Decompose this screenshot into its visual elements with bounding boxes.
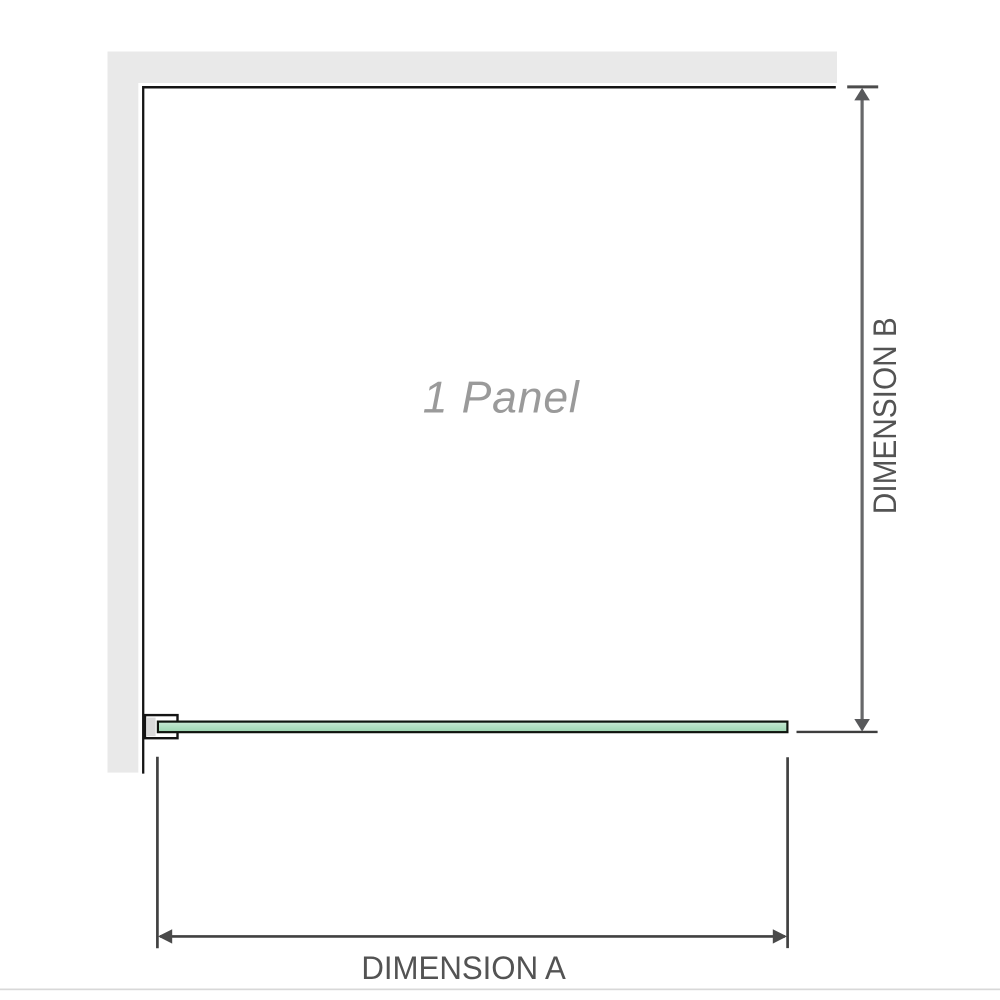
svg-text:DIMENSION A: DIMENSION A <box>361 949 566 986</box>
svg-text:1 Panel: 1 Panel <box>423 374 580 423</box>
svg-text:DIMENSION B: DIMENSION B <box>866 317 903 514</box>
